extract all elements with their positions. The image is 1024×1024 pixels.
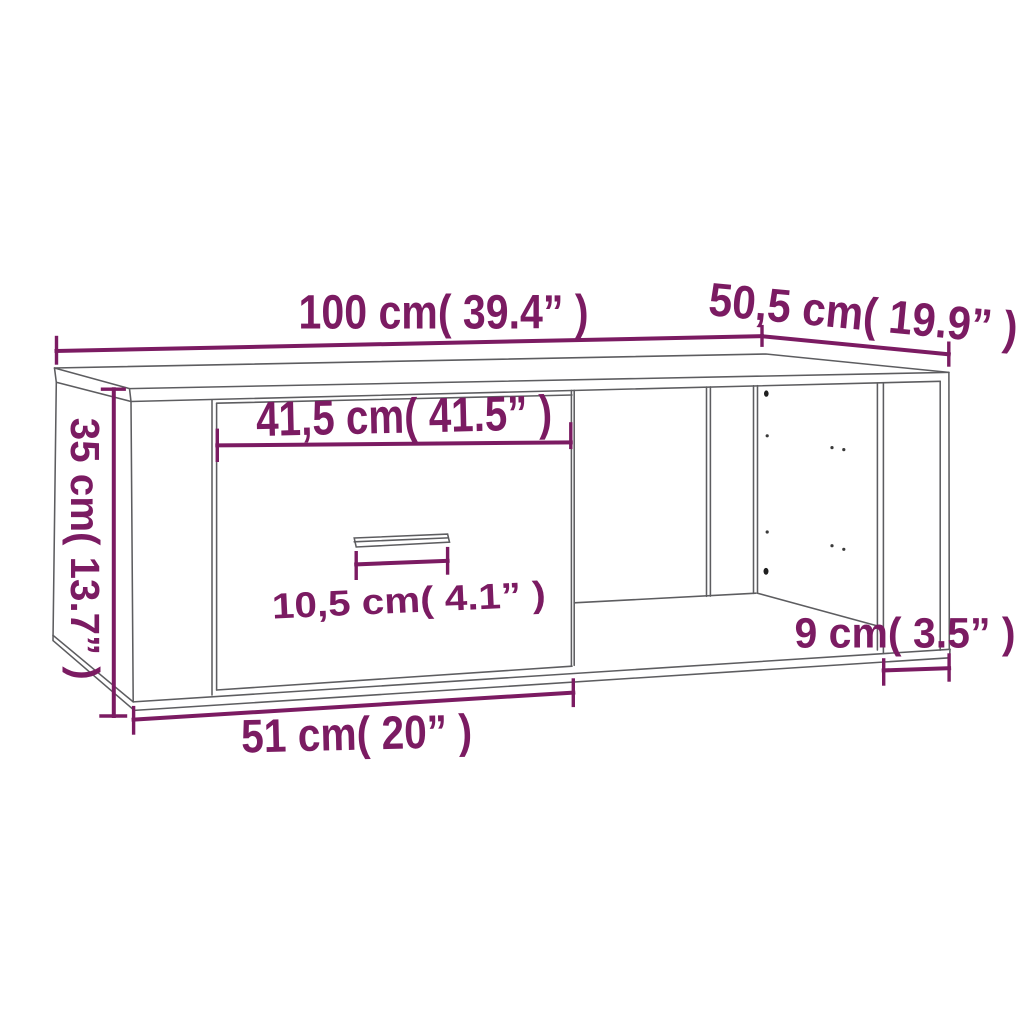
svg-text:100 cm( 39.4” ): 100 cm( 39.4” ) [299,287,589,340]
svg-text:41,5 cm( 41.5” ): 41,5 cm( 41.5” ) [256,386,553,447]
svg-text:51 cm( 20” ): 51 cm( 20” ) [240,704,472,763]
svg-text:35 cm( 13.7” ): 35 cm( 13.7” ) [62,418,108,680]
svg-text:9 cm( 3.5” ): 9 cm( 3.5” ) [795,611,1016,658]
